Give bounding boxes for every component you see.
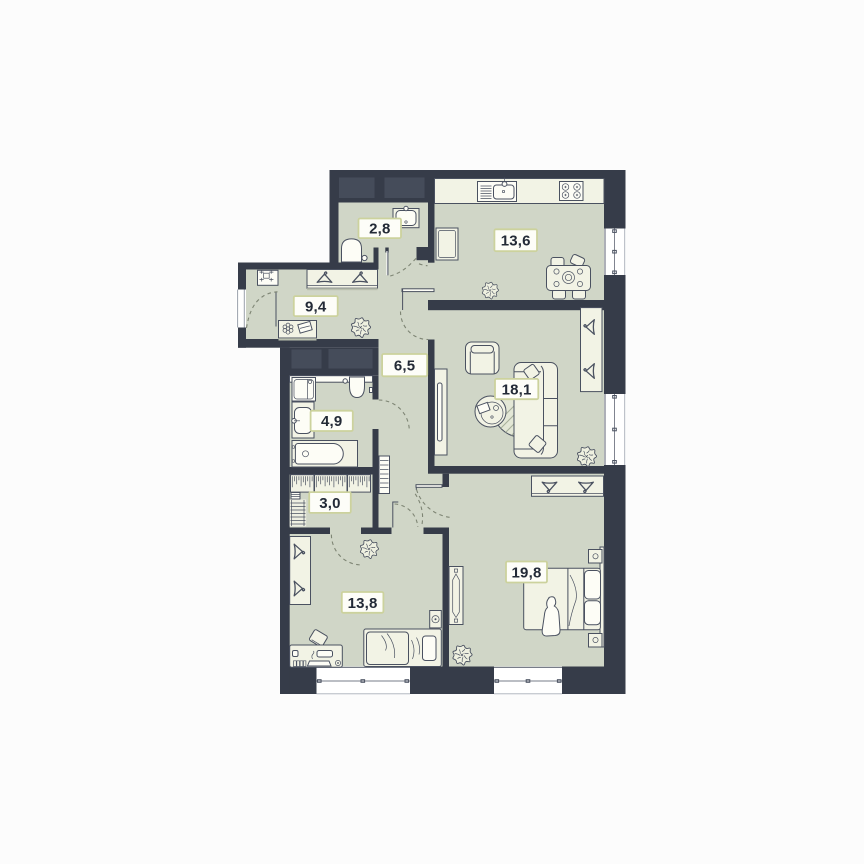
svg-text:19,8: 19,8 <box>512 564 542 581</box>
svg-text:13,8: 13,8 <box>348 595 378 612</box>
svg-text:4,9: 4,9 <box>321 413 342 430</box>
svg-text:18,1: 18,1 <box>502 381 532 398</box>
svg-text:2,8: 2,8 <box>369 221 390 238</box>
svg-text:6,5: 6,5 <box>394 358 415 375</box>
svg-text:9,4: 9,4 <box>305 299 327 316</box>
svg-text:13,6: 13,6 <box>501 233 531 250</box>
svg-text:3,0: 3,0 <box>319 495 340 512</box>
